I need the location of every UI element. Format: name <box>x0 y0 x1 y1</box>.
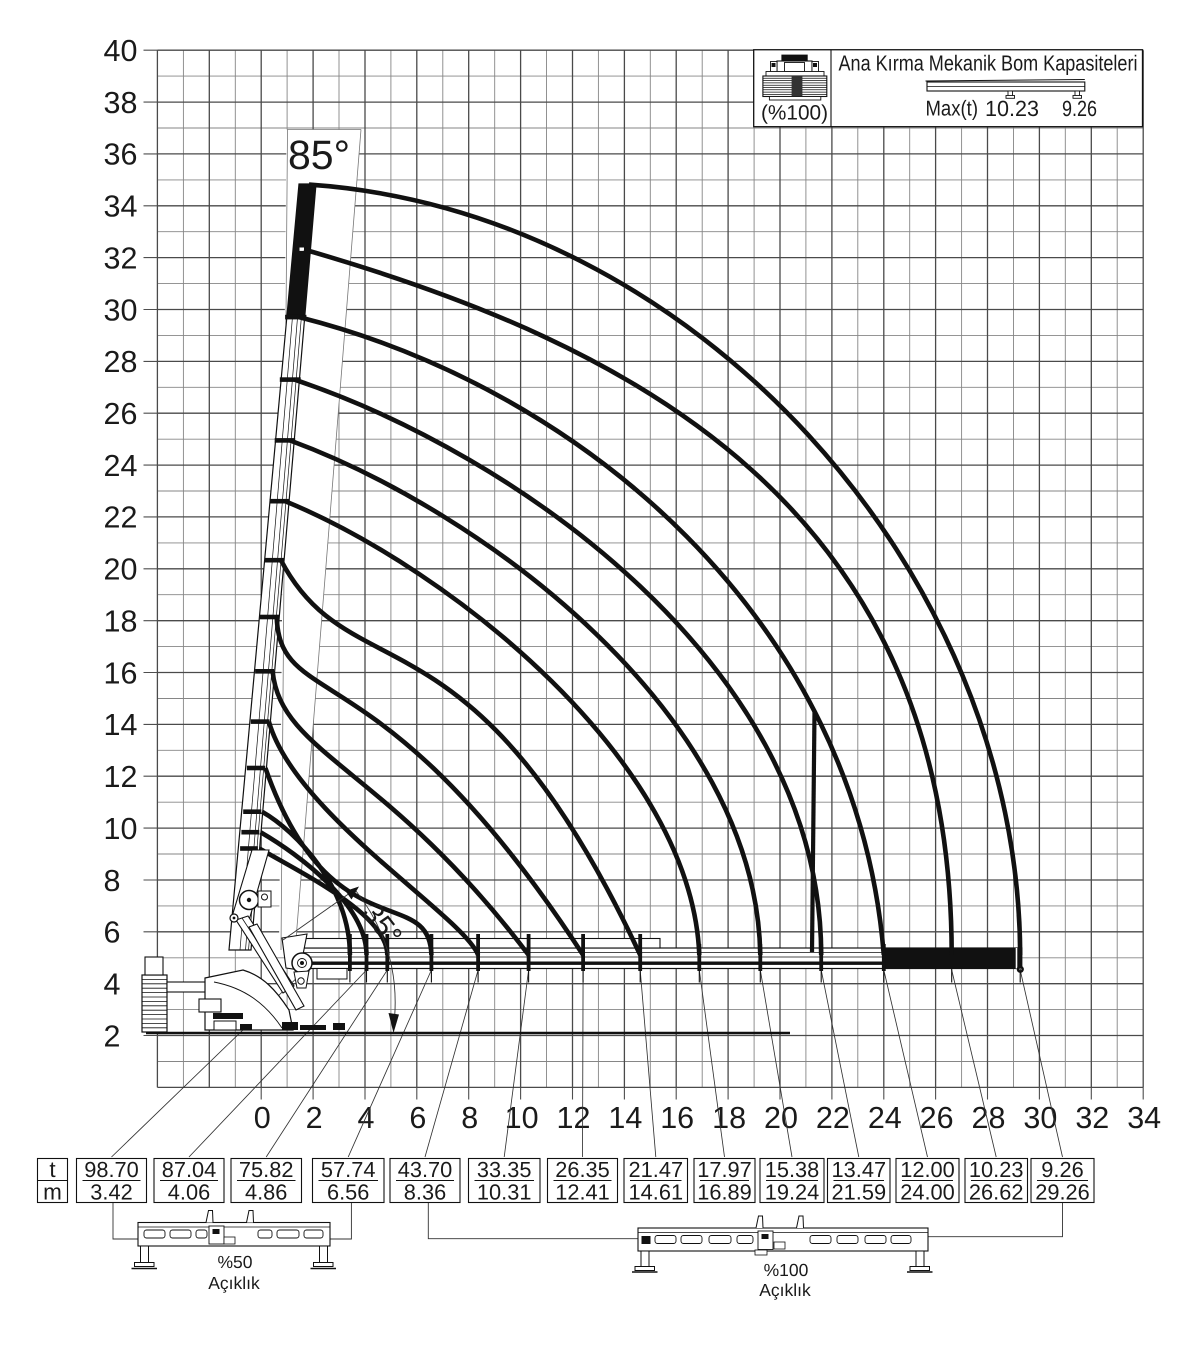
svg-text:2: 2 <box>104 1019 121 1053</box>
svg-text:10: 10 <box>104 812 138 846</box>
svg-text:24: 24 <box>104 449 138 483</box>
svg-text:12.41: 12.41 <box>555 1180 610 1205</box>
svg-text:(%100): (%100) <box>761 102 828 125</box>
svg-text:57.74: 57.74 <box>321 1157 376 1182</box>
svg-text:14: 14 <box>104 708 138 742</box>
svg-text:14.61: 14.61 <box>629 1180 684 1205</box>
svg-text:16: 16 <box>104 656 138 690</box>
svg-text:10.23: 10.23 <box>969 1157 1024 1182</box>
svg-text:26: 26 <box>920 1101 954 1135</box>
svg-text:Açıklık: Açıklık <box>208 1273 260 1293</box>
svg-text:8.36: 8.36 <box>404 1180 446 1205</box>
svg-text:26.62: 26.62 <box>969 1180 1024 1205</box>
svg-text:%100: %100 <box>764 1260 809 1280</box>
svg-text:38: 38 <box>104 86 138 120</box>
svg-text:75.82: 75.82 <box>239 1157 294 1182</box>
svg-text:16.89: 16.89 <box>697 1180 752 1205</box>
svg-text:14: 14 <box>608 1101 642 1135</box>
svg-text:24: 24 <box>868 1101 902 1135</box>
svg-text:t: t <box>49 1157 56 1182</box>
svg-text:85°: 85° <box>288 132 350 178</box>
svg-text:6.56: 6.56 <box>327 1180 369 1205</box>
svg-text:33.35: 33.35 <box>477 1157 532 1182</box>
svg-text:10.23: 10.23 <box>985 96 1039 121</box>
svg-text:98.70: 98.70 <box>84 1157 139 1182</box>
svg-text:4.86: 4.86 <box>245 1180 287 1205</box>
svg-text:21.47: 21.47 <box>629 1157 684 1182</box>
svg-text:10.31: 10.31 <box>477 1180 532 1205</box>
svg-text:0: 0 <box>254 1101 271 1135</box>
svg-text:30: 30 <box>1023 1101 1057 1135</box>
svg-text:34: 34 <box>1127 1101 1161 1135</box>
svg-text:2: 2 <box>306 1101 323 1135</box>
svg-text:6: 6 <box>409 1101 426 1135</box>
svg-text:m: m <box>43 1180 62 1205</box>
svg-text:%50: %50 <box>217 1252 252 1272</box>
svg-text:26.35: 26.35 <box>555 1157 610 1182</box>
svg-text:28: 28 <box>104 345 138 379</box>
svg-text:9.26: 9.26 <box>1062 96 1097 121</box>
svg-text:6: 6 <box>104 916 121 950</box>
svg-text:16: 16 <box>660 1101 694 1135</box>
svg-text:8: 8 <box>461 1101 478 1135</box>
svg-text:87.04: 87.04 <box>162 1157 217 1182</box>
svg-text:20: 20 <box>764 1101 798 1135</box>
svg-text:24.00: 24.00 <box>900 1180 955 1205</box>
svg-text:Açıklık: Açıklık <box>759 1280 811 1300</box>
svg-text:18: 18 <box>104 605 138 639</box>
svg-text:4: 4 <box>104 968 121 1002</box>
svg-text:17.97: 17.97 <box>697 1157 752 1182</box>
svg-text:26: 26 <box>104 397 138 431</box>
svg-text:32: 32 <box>1075 1101 1109 1135</box>
svg-text:8: 8 <box>104 864 121 898</box>
svg-text:40: 40 <box>104 34 138 68</box>
svg-text:12: 12 <box>104 760 138 794</box>
svg-text:4.06: 4.06 <box>168 1180 210 1205</box>
svg-text:20: 20 <box>104 553 138 587</box>
svg-text:30: 30 <box>104 293 138 327</box>
svg-text:21.59: 21.59 <box>832 1180 887 1205</box>
svg-text:Ana Kırma Mekanik Bom Kapasite: Ana Kırma Mekanik Bom Kapasiteleri <box>839 51 1138 76</box>
svg-text:12.00: 12.00 <box>900 1157 955 1182</box>
svg-text:15.38: 15.38 <box>765 1157 820 1182</box>
svg-text:29.26: 29.26 <box>1035 1180 1090 1205</box>
svg-text:10: 10 <box>505 1101 539 1135</box>
svg-text:9.26: 9.26 <box>1041 1157 1083 1182</box>
svg-text:3.42: 3.42 <box>90 1180 132 1205</box>
svg-text:32: 32 <box>104 241 138 275</box>
svg-text:22: 22 <box>104 501 138 535</box>
svg-text:12: 12 <box>557 1101 591 1135</box>
svg-text:Max(t): Max(t) <box>926 97 979 121</box>
svg-text:13.47: 13.47 <box>832 1157 887 1182</box>
svg-text:19.24: 19.24 <box>765 1180 820 1205</box>
svg-text:36: 36 <box>104 138 138 172</box>
svg-text:28: 28 <box>972 1101 1006 1135</box>
svg-text:22: 22 <box>816 1101 850 1135</box>
svg-text:43.70: 43.70 <box>398 1157 453 1182</box>
svg-text:34: 34 <box>104 190 138 224</box>
